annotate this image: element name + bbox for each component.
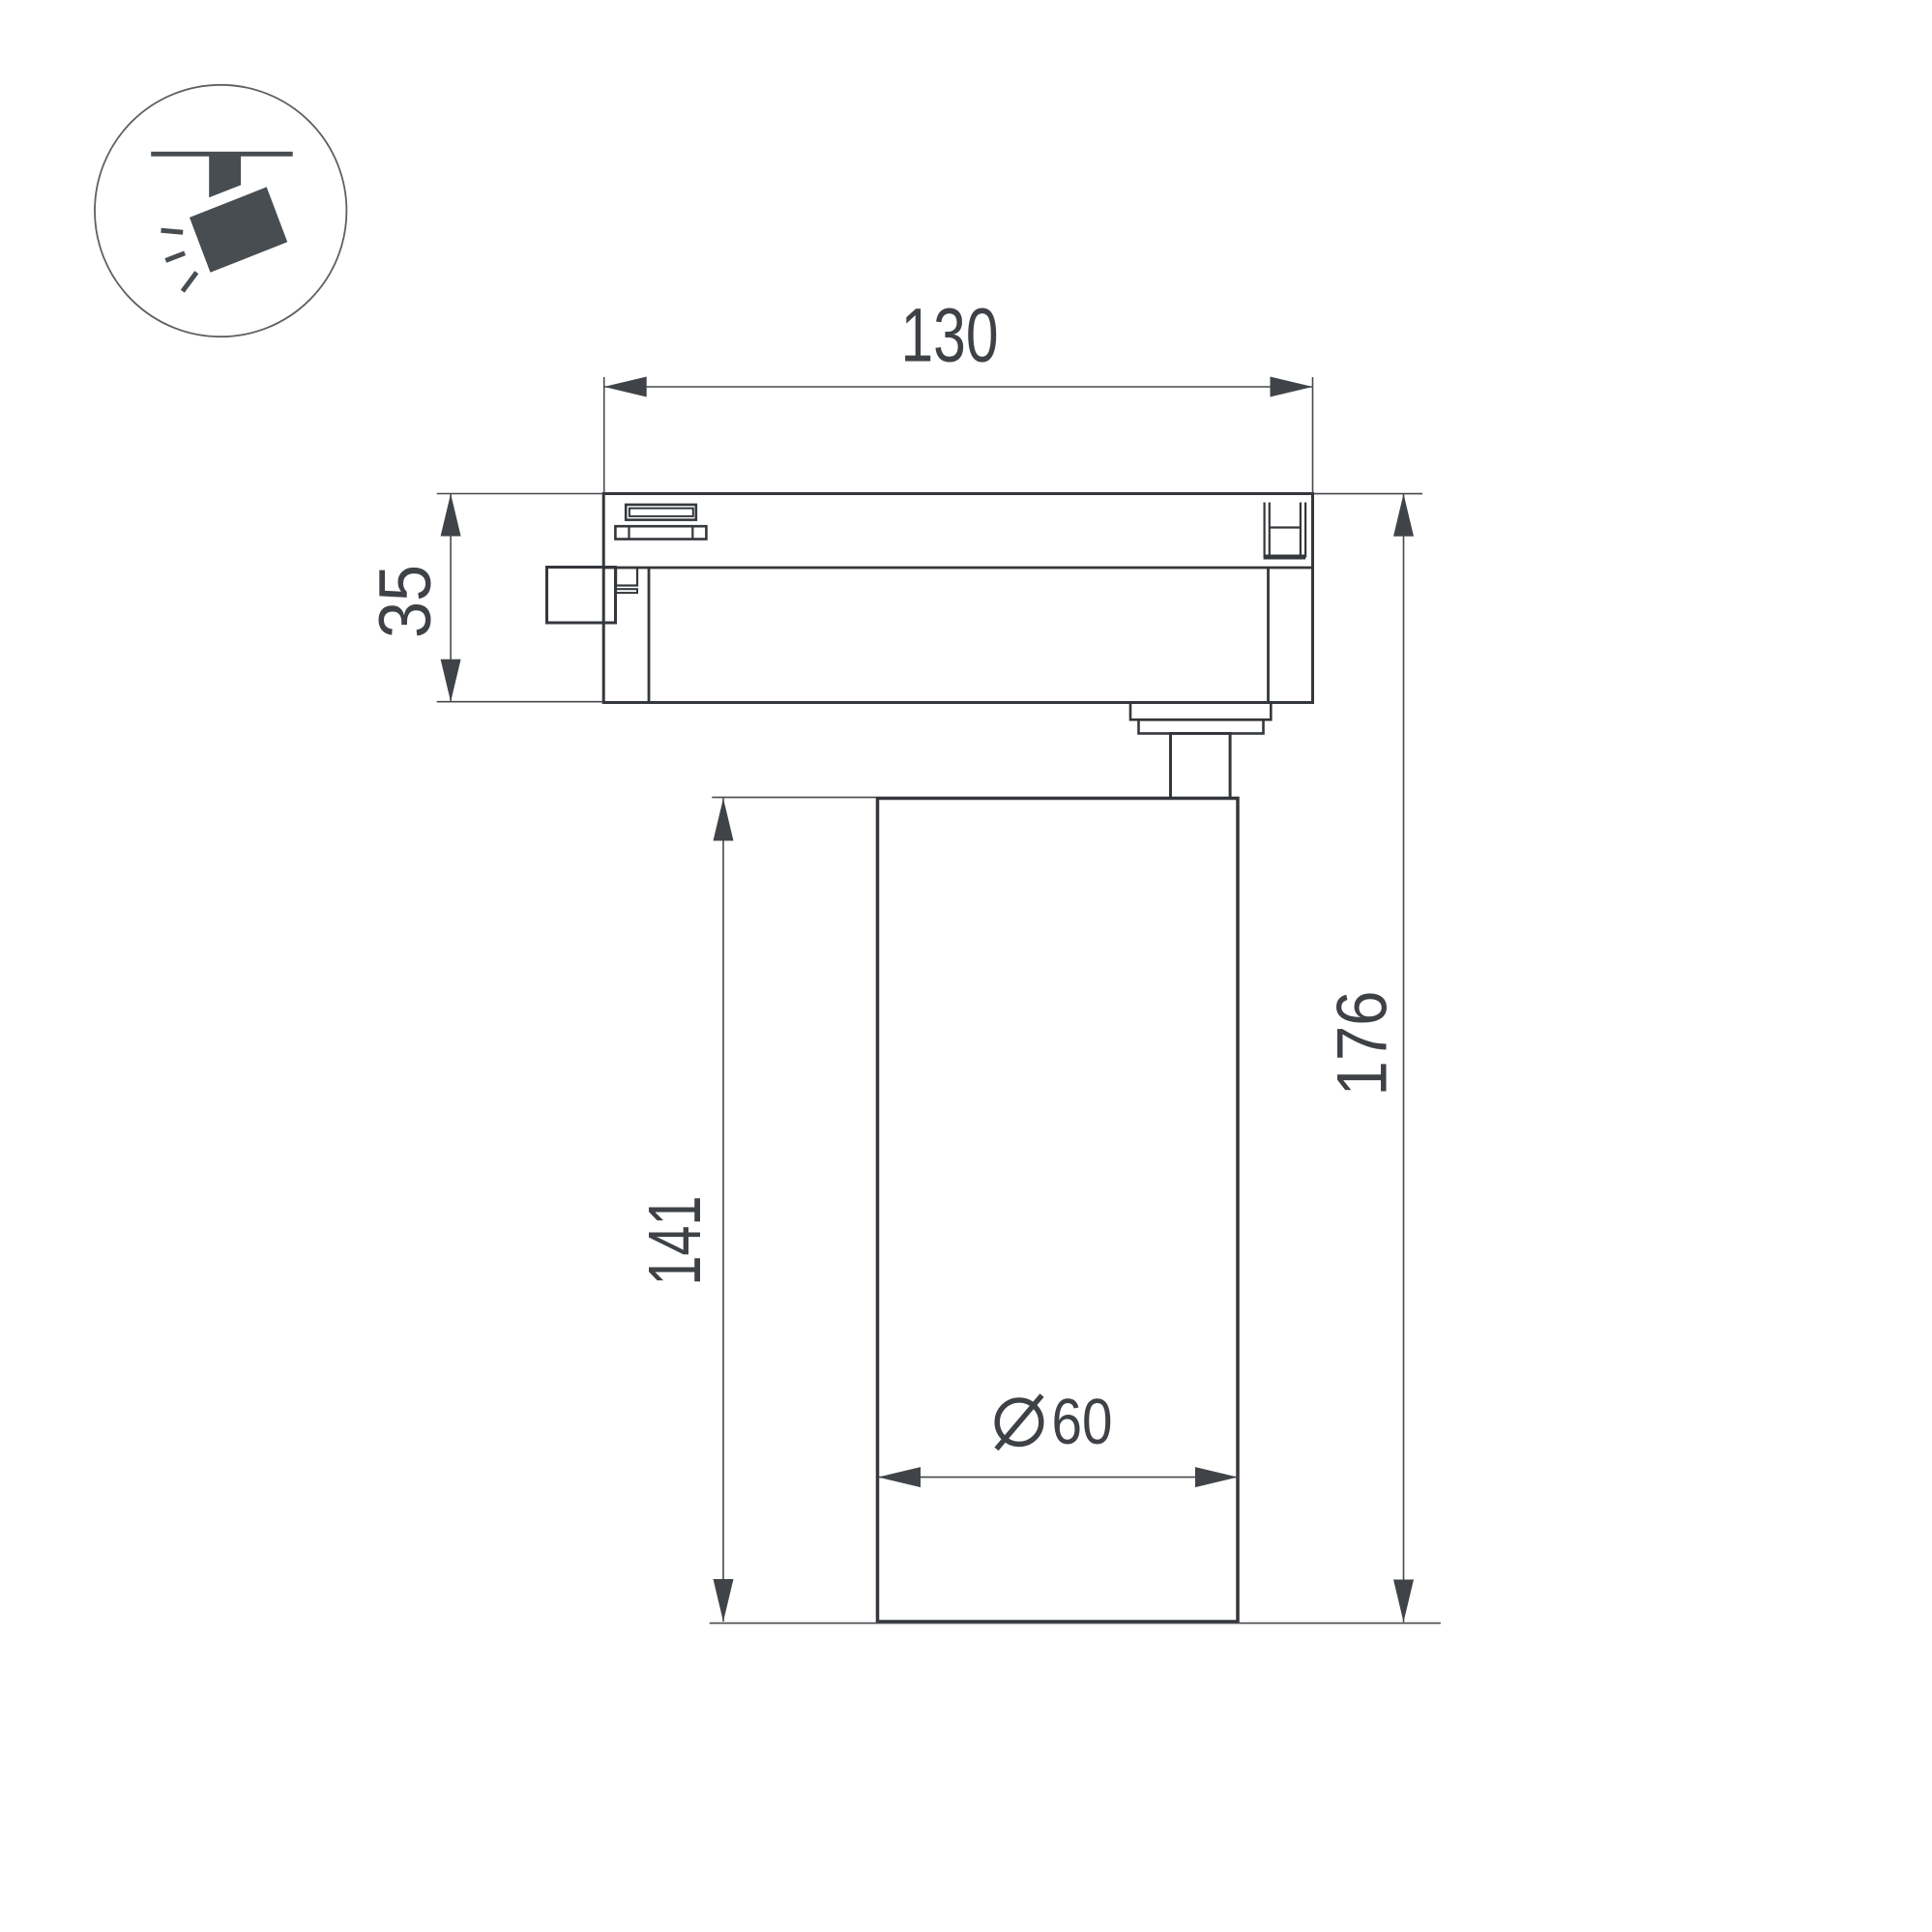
svg-text:176: 176 (1322, 991, 1402, 1097)
svg-text:130: 130 (901, 293, 999, 378)
svg-text:35: 35 (365, 565, 447, 638)
svg-text:60: 60 (1052, 1387, 1113, 1458)
svg-text:141: 141 (633, 1196, 717, 1286)
